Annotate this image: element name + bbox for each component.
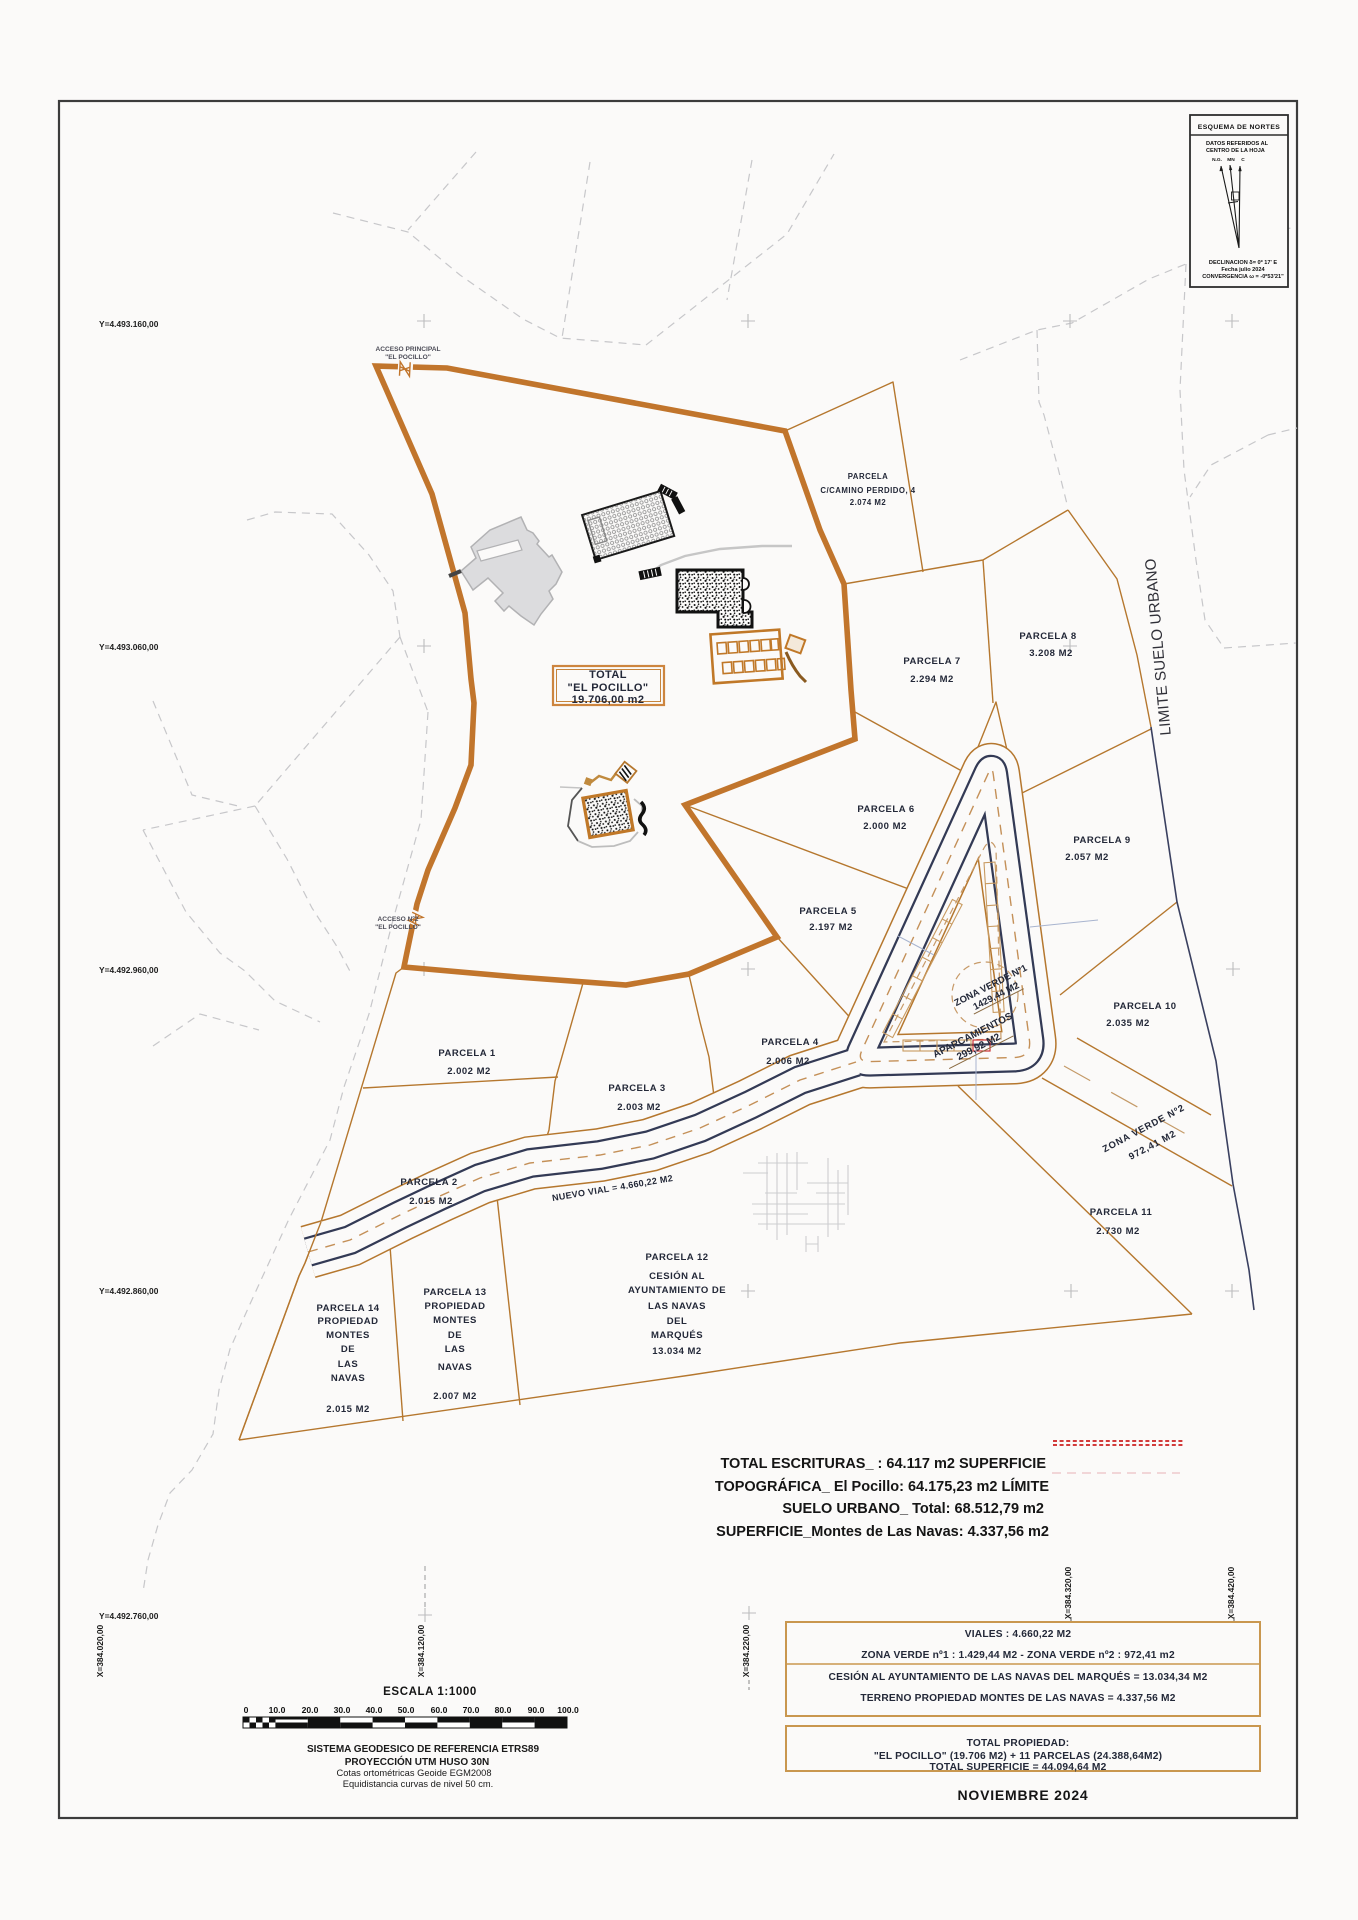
svg-text:PROYECCIÓN UTM HUSO 30N: PROYECCIÓN UTM HUSO 30N: [345, 1755, 489, 1768]
svg-text:60.0: 60.0: [431, 1705, 448, 1715]
svg-text:Fecha julio 2024: Fecha julio 2024: [1221, 267, 1265, 273]
svg-text:PARCELA 5: PARCELA 5: [799, 906, 857, 917]
svg-text:DE: DE: [448, 1330, 462, 1341]
svg-text:PARCELA 7: PARCELA 7: [903, 656, 960, 667]
svg-text:LAS: LAS: [445, 1344, 466, 1355]
svg-text:3.208 M2: 3.208 M2: [1029, 648, 1073, 659]
svg-text:CESIÓN AL AYUNTAMIENTO DE LAS: CESIÓN AL AYUNTAMIENTO DE LAS NAVAS DEL …: [829, 1670, 1208, 1683]
svg-text:50.0: 50.0: [398, 1705, 415, 1715]
svg-text:40.0: 40.0: [366, 1705, 383, 1715]
svg-text:ACCESO Nº2: ACCESO Nº2: [378, 916, 419, 923]
svg-text:DECLINACION δ= 0º 17' E: DECLINACION δ= 0º 17' E: [1209, 260, 1277, 266]
svg-text:PARCELA 1: PARCELA 1: [438, 1048, 496, 1059]
svg-text:X=384.020,00: X=384.020,00: [95, 1624, 105, 1677]
svg-text:CONVERGENCIA ω = -0º53'21": CONVERGENCIA ω = -0º53'21": [1202, 274, 1284, 280]
svg-text:PARCELA 14: PARCELA 14: [316, 1303, 379, 1314]
svg-text:2.006 M2: 2.006 M2: [766, 1056, 810, 1067]
svg-text:2.002 M2: 2.002 M2: [447, 1066, 491, 1077]
svg-text:CESIÓN AL: CESIÓN AL: [649, 1270, 705, 1282]
svg-text:PARCELA 2: PARCELA 2: [400, 1177, 457, 1188]
svg-text:"EL POCILLO": "EL POCILLO": [385, 354, 431, 361]
svg-text:PARCELA 9: PARCELA 9: [1073, 835, 1130, 846]
svg-text:13.034 M2: 13.034 M2: [652, 1346, 701, 1357]
svg-text:"EL POCILLO" (19.706 M2) + 11: "EL POCILLO" (19.706 M2) + 11 PARCELAS (…: [874, 1751, 1162, 1762]
svg-text:PARCELA 8: PARCELA 8: [1019, 631, 1076, 642]
svg-text:ESQUEMA DE NORTES: ESQUEMA DE NORTES: [1198, 124, 1281, 131]
svg-text:SISTEMA GEODESICO DE REFERENCI: SISTEMA GEODESICO DE REFERENCIA ETRS89: [307, 1744, 540, 1755]
svg-text:X=384.220,00: X=384.220,00: [741, 1624, 751, 1677]
svg-text:PARCELA: PARCELA: [848, 472, 889, 481]
svg-text:PARCELA 12: PARCELA 12: [645, 1252, 708, 1263]
svg-text:2.197 M2: 2.197 M2: [809, 922, 853, 933]
svg-text:N.G.: N.G.: [1212, 157, 1222, 163]
svg-text:Cotas ortométricas Geoide EGM2: Cotas ortométricas Geoide EGM2008: [336, 1768, 491, 1778]
svg-text:10.0: 10.0: [269, 1705, 286, 1715]
svg-text:C/CAMINO PERDIDO, 4: C/CAMINO PERDIDO, 4: [820, 486, 915, 495]
svg-text:PARCELA 10: PARCELA 10: [1113, 1001, 1176, 1012]
svg-text:NAVAS: NAVAS: [438, 1362, 472, 1373]
svg-text:MN: MN: [1227, 157, 1235, 163]
svg-text:Y=4.493.060,00: Y=4.493.060,00: [99, 642, 159, 652]
svg-text:MONTES: MONTES: [326, 1330, 370, 1341]
svg-text:X=384.120,00: X=384.120,00: [416, 1624, 426, 1677]
svg-text:PARCELA 13: PARCELA 13: [423, 1287, 486, 1298]
svg-text:0: 0: [244, 1705, 249, 1715]
svg-text:DATOS REFERIDOS AL: DATOS REFERIDOS AL: [1206, 141, 1269, 147]
svg-text:Y=4.493.160,00: Y=4.493.160,00: [99, 319, 159, 329]
svg-text:X=384.420,00: X=384.420,00: [1226, 1566, 1236, 1619]
svg-text:19.706,00 m2: 19.706,00 m2: [572, 694, 645, 706]
svg-text:2.074 M2: 2.074 M2: [850, 498, 887, 507]
svg-text:PROPIEDAD: PROPIEDAD: [425, 1301, 486, 1312]
svg-text:2.015 M2: 2.015 M2: [409, 1196, 453, 1207]
svg-text:2.000 M2: 2.000 M2: [863, 821, 907, 832]
svg-text:SUPERFICIE_Montes de Las Navas: SUPERFICIE_Montes de Las Navas: 4.337,56…: [716, 1524, 1049, 1540]
svg-text:30.0: 30.0: [334, 1705, 351, 1715]
svg-text:PROPIEDAD: PROPIEDAD: [318, 1316, 379, 1327]
svg-text:TOPOGRÁFICA_ El Pocillo: 64.17: TOPOGRÁFICA_ El Pocillo: 64.175,23 m2 LÍ…: [715, 1478, 1049, 1495]
svg-text:PARCELA 6: PARCELA 6: [857, 804, 914, 815]
svg-text:2.015 M2: 2.015 M2: [326, 1404, 370, 1415]
svg-text:X=384.320,00: X=384.320,00: [1063, 1566, 1073, 1619]
svg-text:ZONA VERDE nº1 : 1.429,44 M2: ZONA VERDE nº1 : 1.429,44 M2 - ZONA VERD…: [861, 1650, 1175, 1661]
svg-text:ACCESO PRINCIPAL: ACCESO PRINCIPAL: [375, 346, 440, 353]
svg-text:NAVAS: NAVAS: [331, 1373, 365, 1384]
svg-text:PARCELA 3: PARCELA 3: [608, 1083, 665, 1094]
svg-text:CENTRO DE LA HOJA: CENTRO DE LA HOJA: [1206, 148, 1265, 154]
svg-text:Y=4.492.860,00: Y=4.492.860,00: [99, 1286, 159, 1296]
svg-text:ESCALA 1:1000: ESCALA 1:1000: [383, 1686, 477, 1698]
svg-text:VIALES : 4.660,22 M2: VIALES : 4.660,22 M2: [965, 1629, 1072, 1640]
svg-text:MONTES: MONTES: [433, 1315, 477, 1326]
svg-text:"EL POCILLO": "EL POCILLO": [375, 924, 421, 931]
svg-text:PARCELA 11: PARCELA 11: [1090, 1207, 1153, 1218]
svg-text:SUELO URBANO_ Total: 68.512,79: SUELO URBANO_ Total: 68.512,79 m2: [782, 1501, 1044, 1517]
svg-text:PARCELA 4: PARCELA 4: [761, 1037, 819, 1048]
svg-text:LAS NAVAS: LAS NAVAS: [648, 1301, 706, 1312]
svg-text:TERRENO PROPIEDAD MONTES DE LA: TERRENO PROPIEDAD MONTES DE LAS NAVAS = …: [860, 1693, 1175, 1704]
svg-text:MARQUÉS: MARQUÉS: [651, 1330, 703, 1341]
svg-text:2.294 M2: 2.294 M2: [910, 674, 954, 685]
svg-text:Y=4.492.760,00: Y=4.492.760,00: [99, 1611, 159, 1621]
svg-text:Equidistancia curvas de nivel: Equidistancia curvas de nivel 50 cm.: [343, 1779, 493, 1789]
svg-text:20.0: 20.0: [302, 1705, 319, 1715]
svg-text:90.0: 90.0: [528, 1705, 545, 1715]
svg-text:AYUNTAMIENTO DE: AYUNTAMIENTO DE: [628, 1285, 726, 1296]
svg-text:TOTAL SUPERFICIE = 44.094,64: TOTAL SUPERFICIE = 44.094,64 M2: [930, 1762, 1107, 1773]
svg-text:2.035 M2: 2.035 M2: [1106, 1018, 1150, 1029]
svg-text:TOTAL ESCRITURAS_ : 64.117 m2: TOTAL ESCRITURAS_ : 64.117 m2 SUPERFICIE: [720, 1456, 1046, 1472]
svg-text:2.003 M2: 2.003 M2: [617, 1102, 661, 1113]
svg-text:"EL POCILLO": "EL POCILLO": [567, 682, 648, 694]
svg-text:2.007 M2: 2.007 M2: [433, 1391, 477, 1402]
svg-text:2.730 M2: 2.730 M2: [1096, 1226, 1140, 1237]
svg-text:LAS: LAS: [338, 1359, 359, 1370]
svg-text:2.057 M2: 2.057 M2: [1065, 852, 1109, 863]
svg-text:80.0: 80.0: [495, 1705, 512, 1715]
svg-text:TOTAL PROPIEDAD:: TOTAL PROPIEDAD:: [967, 1738, 1070, 1749]
svg-text:NOVIEMBRE 2024: NOVIEMBRE 2024: [957, 1787, 1088, 1803]
svg-text:TOTAL: TOTAL: [589, 669, 627, 681]
svg-text:Y=4.492.960,00: Y=4.492.960,00: [99, 965, 159, 975]
svg-text:100.0: 100.0: [557, 1705, 579, 1715]
svg-text:DE: DE: [341, 1344, 355, 1355]
svg-text:70.0: 70.0: [463, 1705, 480, 1715]
svg-text:DEL: DEL: [667, 1316, 688, 1327]
svg-text:C: C: [1241, 157, 1245, 163]
